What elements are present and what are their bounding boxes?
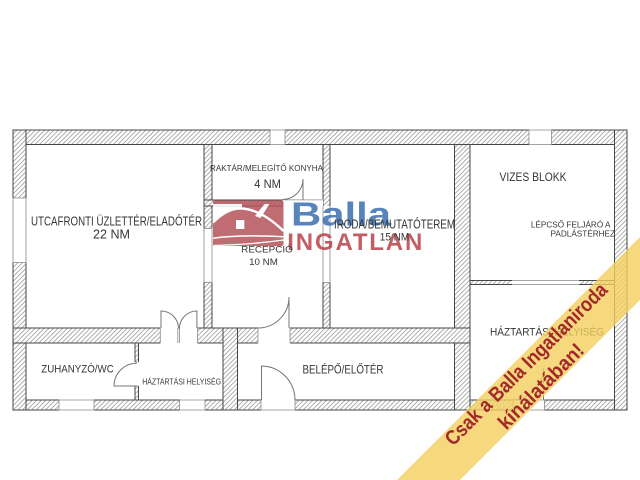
- svg-text:RECEPCIÓ: RECEPCIÓ: [241, 245, 293, 255]
- svg-text:BELÉPŐ/ELŐTÉR: BELÉPŐ/ELŐTÉR: [303, 362, 384, 377]
- svg-text:15 NM: 15 NM: [380, 232, 410, 244]
- svg-text:4 NM: 4 NM: [254, 177, 281, 191]
- svg-text:10 NM: 10 NM: [249, 257, 278, 267]
- svg-text:VIZES BLOKK: VIZES BLOKK: [500, 171, 567, 184]
- svg-text:22 NM: 22 NM: [93, 226, 130, 241]
- svg-text:RAKTÁR/MELEGÍTŐ KONYHA: RAKTÁR/MELEGÍTŐ KONYHA: [210, 163, 324, 173]
- svg-text:IRODA/BEMUTATÓTEREM: IRODA/BEMUTATÓTEREM: [334, 217, 455, 232]
- svg-text:ZUHANYZÓ/WC: ZUHANYZÓ/WC: [41, 363, 114, 376]
- svg-text:HÁZTARTÁSI HELYISÉG: HÁZTARTÁSI HELYISÉG: [142, 376, 221, 386]
- svg-text:LÉPCSŐ FELJÁRÓ A: LÉPCSŐ FELJÁRÓ A: [531, 219, 611, 229]
- svg-text:PADLÁSTÉRHEZ: PADLÁSTÉRHEZ: [551, 229, 615, 239]
